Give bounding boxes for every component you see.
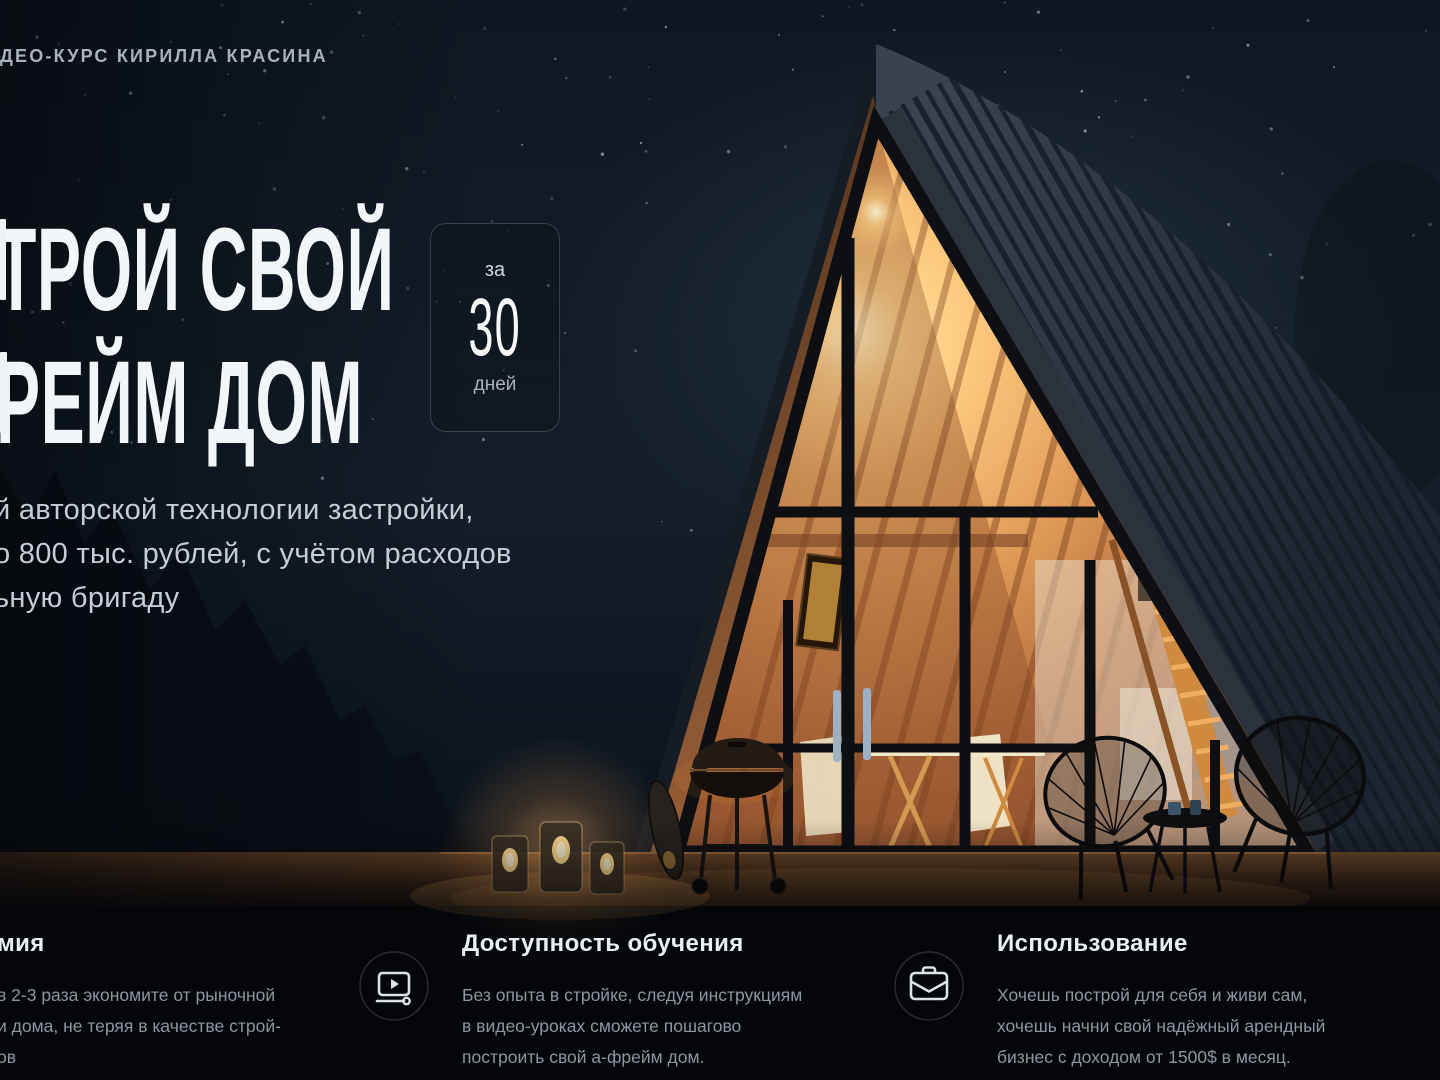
briefcase-icon <box>893 950 965 1022</box>
feature-title: Использование <box>997 930 1377 958</box>
intro-line: й авторской технологии застройки, <box>0 488 512 532</box>
title-line-1: ТРОЙ СВОЙ <box>0 204 395 337</box>
intro-line: ьную бригаду <box>0 576 512 620</box>
door-handle <box>833 690 841 762</box>
intro-line: о 800 тыс. рублей, с учётом расходов <box>0 532 512 576</box>
feature-line: Без опыта в стройке, следуя инструкциям <box>462 980 832 1011</box>
cut-letter-fragment <box>0 352 7 433</box>
feature-line: в 2-3 раза экономите от рыночной <box>0 980 327 1011</box>
badge-number: 30 <box>469 286 521 370</box>
feature-line: построить свой а-фрейм дом. <box>462 1042 832 1073</box>
duration-badge: за 30 дней <box>430 223 560 432</box>
feature-title: Доступность обучения <box>462 930 832 958</box>
feature-line: хочешь начни свой надёжный арендный <box>997 1011 1377 1042</box>
intro-text: й авторской технологии застройки, о 800 … <box>0 488 512 620</box>
door-handle <box>863 688 871 760</box>
badge-prefix: за <box>485 259 505 282</box>
feature-line: в видео-уроках сможете пошагово <box>462 1011 832 1042</box>
page-title: ТРОЙ СВОЙ РЕЙМ ДОМ <box>0 204 395 470</box>
title-line-2: РЕЙМ ДОМ <box>0 337 395 470</box>
feature-line: ов <box>0 1042 327 1073</box>
cut-letter-fragment <box>0 219 6 300</box>
feature-line: и дома, не теряя в качестве строй- <box>0 1011 327 1042</box>
course-author-label: ДЕО-КУРС КИРИЛЛА КРАСИНА <box>0 46 328 67</box>
feature-title: мия <box>0 930 327 958</box>
feature-learning: Доступность обучения Без опыта в стройке… <box>462 930 832 1073</box>
feature-line: бизнес с доходом от 1500$ в месяц. <box>997 1042 1377 1073</box>
hero-section: ДЕО-КУРС КИРИЛЛА КРАСИНА ТРОЙ СВОЙ РЕЙМ … <box>0 0 1440 1080</box>
feature-line: Хочешь построй для себя и живи сам, <box>997 980 1377 1011</box>
video-player-icon <box>358 950 430 1022</box>
feature-economy: мия в 2-3 раза экономите от рыночной и д… <box>0 930 327 1073</box>
badge-suffix: дней <box>474 374 517 396</box>
feature-usage: Использование Хочешь построй для себя и … <box>997 930 1377 1073</box>
